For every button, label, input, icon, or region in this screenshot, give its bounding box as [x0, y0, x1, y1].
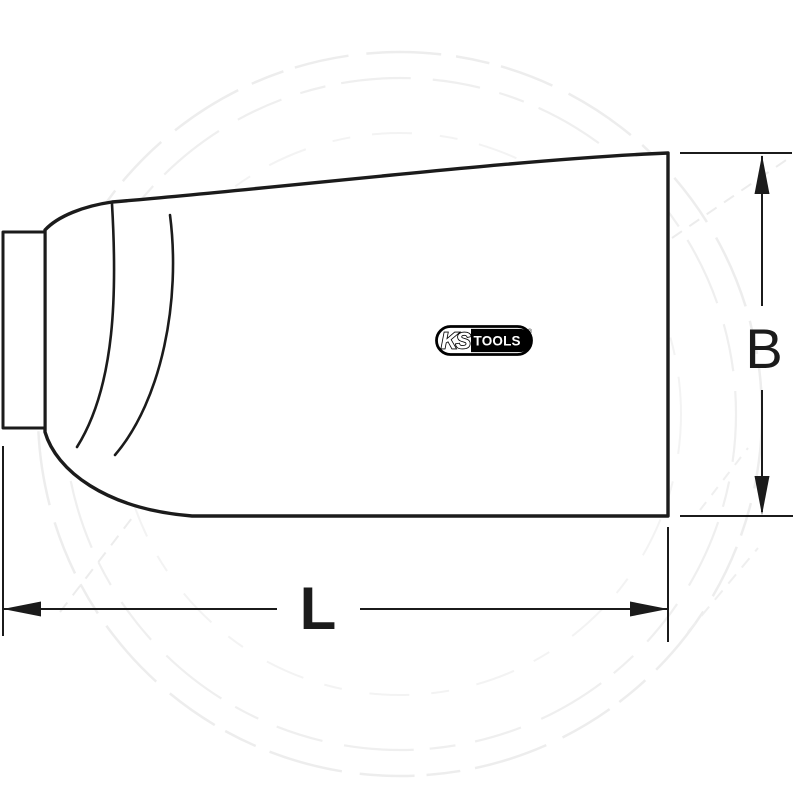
length-arrowhead-right — [630, 602, 668, 617]
technical-drawing-svg: L B — [0, 0, 800, 800]
logo-tools-text: TOOLS — [474, 334, 521, 349]
cap-insert-outline — [3, 232, 45, 428]
cap-outline-group — [3, 153, 668, 516]
cap-body-outline — [45, 153, 668, 516]
width-arrowhead-top — [755, 155, 770, 194]
width-dimension-label: B — [745, 317, 782, 380]
product-drawing: L B KS TOOLS ® — [0, 0, 800, 800]
width-arrowhead-bottom — [755, 476, 770, 515]
ks-tools-logo: KS TOOLS ® — [435, 325, 533, 356]
length-arrowhead-left — [3, 602, 41, 617]
logo-ks-text: KS — [441, 328, 472, 354]
length-dimension-label: L — [300, 575, 337, 642]
ks-tools-logo-svg: KS TOOLS ® — [435, 325, 533, 356]
logo-registered-mark: ® — [528, 329, 533, 336]
